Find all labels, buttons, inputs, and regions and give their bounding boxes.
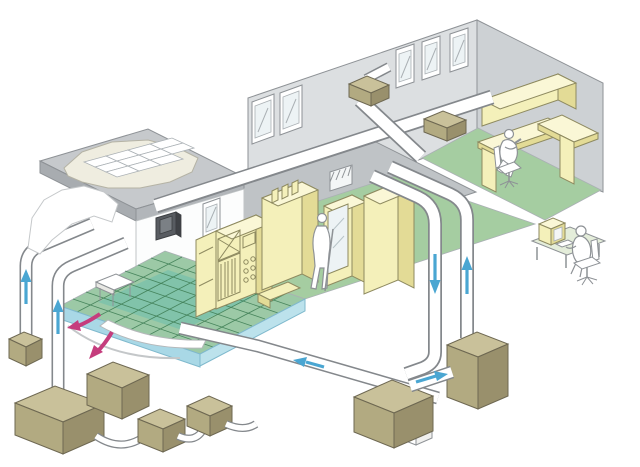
desk-panel [560,135,574,184]
recirculation-arrow [89,332,112,359]
person-head [576,226,586,236]
cleanroom-hvac-illustration [0,0,640,467]
isometric-diagram [0,0,640,467]
window [396,44,414,88]
person-head [505,130,514,139]
desk-panel [482,148,496,192]
window [252,94,274,144]
person-head [318,214,327,223]
pump-unit [138,409,185,452]
window [422,36,440,80]
window [280,85,302,135]
pump-unit [187,396,232,436]
plenum-hood [28,186,118,254]
ahu-right [447,332,508,409]
monitoring-workstation [532,218,605,285]
window [450,28,468,72]
pump-unit [9,332,42,366]
process-cabinet [262,180,318,290]
crt-monitor [539,218,565,245]
chair-feet [577,277,597,285]
